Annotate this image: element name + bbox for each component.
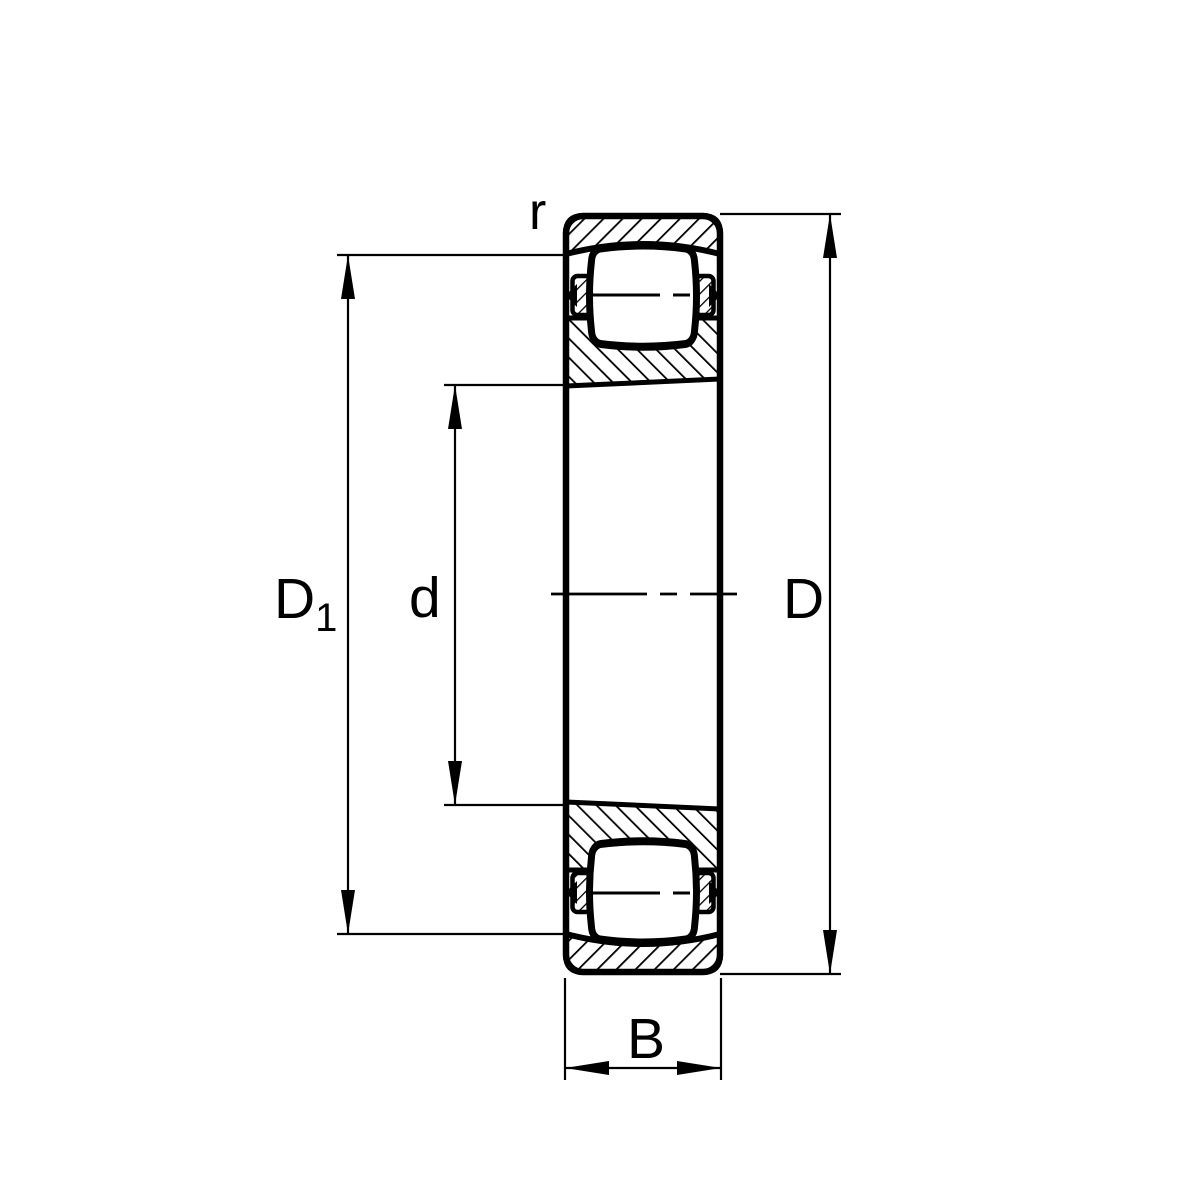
dim-label-r: r xyxy=(529,183,546,241)
dim-label-d1-base: D xyxy=(274,567,315,631)
dim-label-d: d xyxy=(409,566,441,630)
dim-D-arrow-down-icon xyxy=(823,930,837,974)
dim-d-arrow-down-icon xyxy=(448,761,462,805)
bearing-cross-section-diagram: D1 d D B r xyxy=(0,0,1200,1200)
bearing-body xyxy=(551,216,737,972)
dim-B-arrow-left-icon xyxy=(565,1061,609,1075)
dim-B-arrow-right-icon xyxy=(677,1061,721,1075)
dim-d-arrow-up-icon xyxy=(448,385,462,429)
dim-d1-arrow-down-icon xyxy=(341,890,355,934)
dimension-d1 xyxy=(337,255,564,934)
dim-label-B: B xyxy=(627,1007,665,1071)
dimension-d xyxy=(444,385,564,805)
dim-label-D: D xyxy=(783,567,824,631)
dim-d1-arrow-up-icon xyxy=(341,255,355,299)
dim-label-d1: D1 xyxy=(274,567,337,640)
dim-D-arrow-up-icon xyxy=(823,214,837,258)
technical-drawing-canvas: D1 d D B r xyxy=(0,0,1200,1200)
dim-label-d1-subscript: 1 xyxy=(315,596,337,640)
